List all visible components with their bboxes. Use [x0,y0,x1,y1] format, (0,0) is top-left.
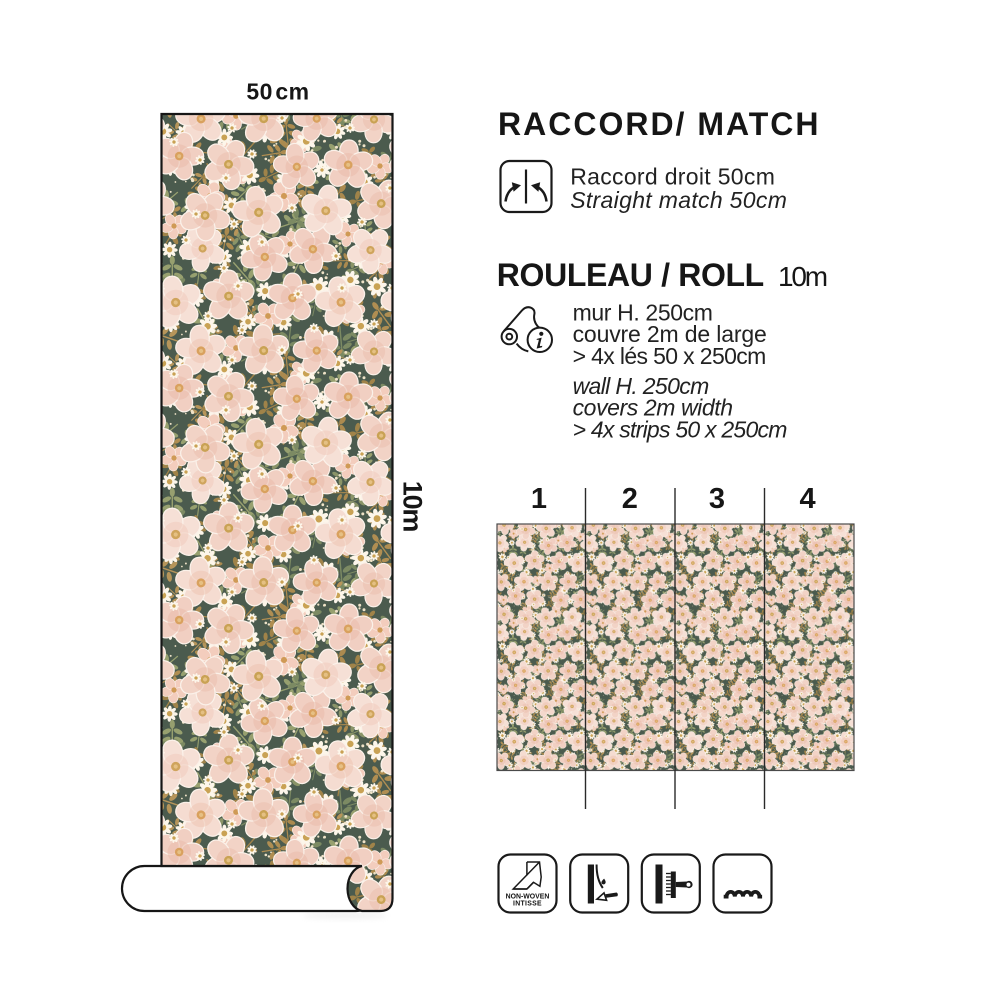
svg-text:50 cm: 50 cm [246,79,309,105]
svg-text:1: 1 [531,483,547,515]
svg-text:> 4x strips 50 x 250cm: > 4x strips 50 x 250cm [573,417,788,443]
svg-text:4: 4 [800,483,816,515]
svg-text:RACCORD/ MATCH: RACCORD/ MATCH [498,106,820,142]
svg-text:10m: 10m [398,481,428,532]
svg-text:Straight match 50cm: Straight match 50cm [570,187,787,213]
svg-text:ROULEAU / ROLL: ROULEAU / ROLL [497,257,764,293]
svg-text:NON-WOVEN: NON-WOVEN [506,893,550,900]
svg-text:2: 2 [622,483,638,515]
svg-text:3: 3 [709,483,725,515]
svg-text:10m: 10m [778,261,827,292]
svg-text:> 4x lés 50 x 250cm: > 4x lés 50 x 250cm [573,343,766,369]
svg-text:INTISSE: INTISSE [513,901,542,908]
svg-text:Raccord droit 50cm: Raccord droit 50cm [570,164,775,190]
